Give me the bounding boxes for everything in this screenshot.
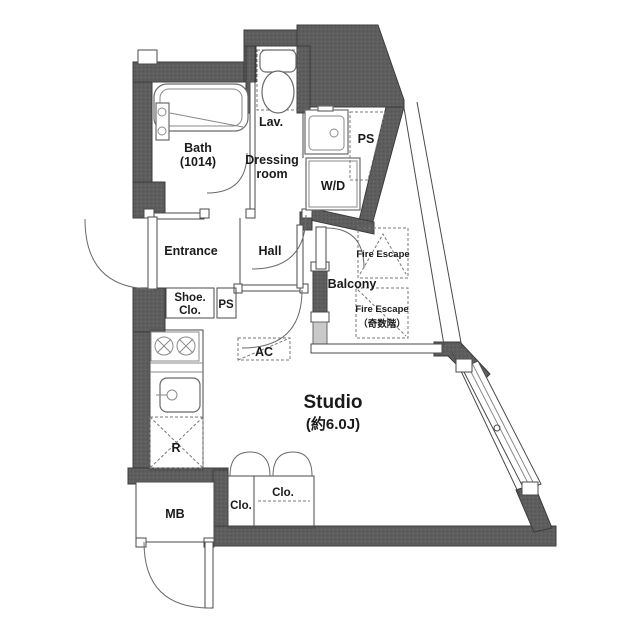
balcony-label: Balcony: [328, 277, 377, 291]
floor-plan-canvas: Bath (1014) Lav. Dressing room PS W/D En…: [0, 0, 640, 640]
wall-bottom: [213, 526, 556, 546]
wall-top-right-block: [297, 25, 404, 107]
fire-escape-upper-label: Fire Escape: [356, 249, 409, 260]
washer-dryer-label: W/D: [321, 179, 345, 193]
closet-bifold-door: [273, 452, 293, 476]
hall-label: Hall: [259, 244, 282, 258]
service-door-leaf: [205, 542, 213, 608]
refrigerator-label: R: [171, 441, 180, 455]
wall-balcony-left-upper: [313, 270, 327, 312]
floor-plan: Bath (1014) Lav. Dressing room PS W/D En…: [0, 0, 640, 640]
entrance-door-arc: [85, 219, 153, 289]
fire-escape-lower-label: Fire Escape: [355, 304, 408, 315]
ps-upper-label: PS: [358, 132, 375, 146]
dressing-room-label: Dressing: [245, 153, 299, 167]
wall-diagonal-wedge: [358, 107, 404, 225]
ac-label: AC: [255, 345, 273, 359]
door-jamb: [246, 209, 255, 218]
window-end-cap-top: [456, 359, 472, 372]
wall-kitchen-left: [133, 332, 150, 470]
partition-bath-dressing: [250, 82, 255, 212]
shoe-closet-label2: Clo.: [179, 305, 201, 317]
entrance-label: Entrance: [164, 244, 218, 258]
closet-small-label: Clo.: [230, 500, 252, 512]
door-jamb: [200, 209, 209, 218]
partition-hall-studio: [242, 285, 300, 291]
service-door-arc: [144, 542, 210, 608]
wall-lav-right: [297, 46, 310, 113]
closet-bifold-door: [250, 452, 270, 476]
closet-large-label: Clo.: [272, 487, 294, 499]
partition-bath-hall: [152, 213, 204, 219]
washbasin-faucet: [318, 106, 333, 111]
studio-size-label: (約6.0J): [306, 415, 360, 433]
studio-door-leaf: [297, 225, 303, 288]
bath-size-label: (1014): [180, 155, 216, 169]
dressing-room-label2: room: [256, 167, 287, 181]
meter-box-label: MB: [165, 507, 184, 521]
wall-bath-top: [133, 62, 252, 82]
wall-closet-left: [213, 470, 228, 530]
window-glass-line2: [472, 363, 535, 486]
wall-notch: [138, 50, 157, 64]
fire-escape-lower-label2: （奇数階）: [358, 318, 406, 330]
sliding-window: [462, 361, 541, 491]
closet-bifold-door: [230, 452, 250, 476]
wall-left-mid: [133, 288, 165, 332]
toilet-bowl-icon: [262, 71, 294, 113]
studio-door-arc: [242, 290, 302, 348]
closet-bifold-door: [293, 452, 312, 476]
toilet-tank-icon: [260, 50, 296, 72]
stove-icon: [151, 332, 199, 361]
window-end-cap-bottom: [522, 482, 538, 495]
studio-label: Studio: [303, 392, 362, 413]
balcony-wall-cap: [311, 312, 329, 322]
lavatory-label: Lav.: [259, 115, 283, 129]
balcony-rail-bottom: [311, 344, 442, 353]
entrance-door-leaf: [148, 217, 157, 289]
ps-lower-label: PS: [218, 299, 234, 311]
bath-label: Bath: [184, 141, 212, 155]
shoe-closet-label: Shoe.: [174, 292, 205, 304]
wall-lav-top: [244, 30, 300, 46]
bath-faucet-icon: [156, 103, 169, 140]
balcony-door-leaf: [316, 227, 326, 269]
